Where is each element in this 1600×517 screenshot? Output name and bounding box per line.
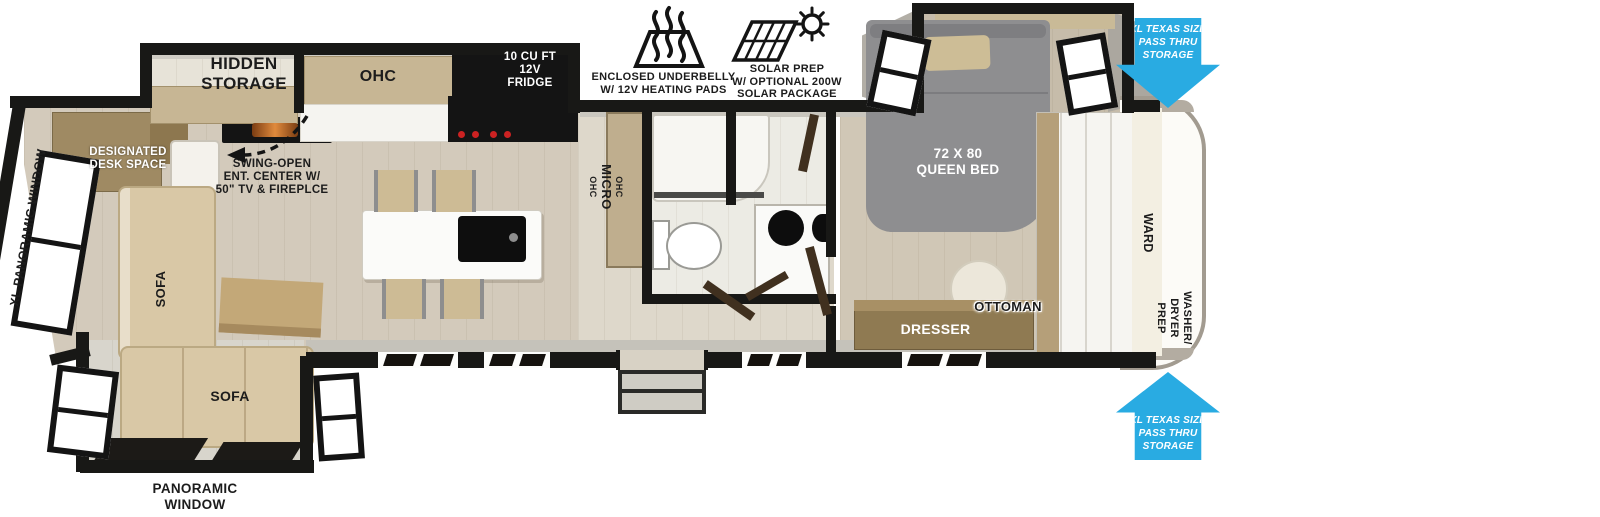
floorplan-canvas: XL TEXAS SIZE PASS THRU STORAGE XL TEXAS… xyxy=(0,0,1600,517)
range-burner-1 xyxy=(458,131,465,138)
designated-desk-label: DESIGNATED DESK SPACE xyxy=(66,146,190,172)
shower-threshold xyxy=(654,192,764,198)
panoramic-window-label: PANORAMIC WINDOW xyxy=(120,481,270,512)
bar-stool xyxy=(432,170,476,212)
bathroom-right-wall xyxy=(826,107,836,257)
range-burner-3 xyxy=(490,131,497,138)
cabinet-micro-label: MICRO xyxy=(599,164,614,210)
wardrobe xyxy=(1036,112,1134,354)
coffee-table xyxy=(219,277,324,337)
fridge-label: 10 CU FT 12V FRIDGE xyxy=(482,51,578,91)
solar-prep-icon xyxy=(730,8,834,66)
ohc-label: OHC xyxy=(328,68,428,86)
range-burner-2 xyxy=(472,131,479,138)
entry-step-divider xyxy=(622,389,702,393)
kitchen-counter xyxy=(300,104,452,142)
cabinet-ohc-top-label: OHC xyxy=(614,176,624,198)
bar-stool xyxy=(440,279,484,319)
hidden-storage-label: HIDDEN STORAGE xyxy=(162,54,326,93)
sofa-slideout-right-wall xyxy=(300,356,313,470)
sofa-slideout-right-window xyxy=(313,373,365,462)
bottom-window xyxy=(378,352,458,368)
cooktop-knob xyxy=(509,233,518,242)
solar-label: SOLAR PREP W/ OPTIONAL 200W SOLAR PACKAG… xyxy=(707,63,867,101)
washer-dryer-label: WASHER/ DRYER PREP xyxy=(1153,286,1193,350)
entry-door-opening xyxy=(616,350,708,370)
pass-thru-label-bottom: XL TEXAS SIZE PASS THRU STORAGE xyxy=(1130,414,1206,453)
ottoman-label: OTTOMAN xyxy=(950,300,1066,315)
pass-thru-label-top: XL TEXAS SIZE PASS THRU STORAGE xyxy=(1130,23,1206,62)
bedroom-slideout-right-wall xyxy=(1122,3,1134,113)
sofa-left-label: SOFA xyxy=(154,239,172,339)
bathroom-inner-wall xyxy=(726,107,736,205)
toilet-bowl xyxy=(666,222,722,270)
sofa-bottom-label: SOFA xyxy=(180,388,280,404)
bedroom-slideout-top-wall xyxy=(912,3,1134,14)
top-wall-cap xyxy=(1128,100,1160,112)
pass-thru-arrow-bottom: XL TEXAS SIZE PASS THRU STORAGE xyxy=(1116,372,1220,460)
bed-pillow xyxy=(923,35,990,71)
bottom-window xyxy=(484,352,550,368)
swing-open-arrow xyxy=(225,108,315,164)
range-burner-4 xyxy=(504,131,511,138)
top-wall-rear xyxy=(10,96,152,108)
sofa-slideout-left-window xyxy=(47,365,119,460)
ward-label: WARD xyxy=(1139,203,1155,263)
cabinet-ohc-bottom-label: OHC xyxy=(588,176,598,198)
bar-stool xyxy=(382,279,426,319)
dresser-label: DRESSER xyxy=(878,321,993,337)
bar-stool xyxy=(374,170,418,212)
sofa-slideout-bottom-wall xyxy=(80,460,314,473)
bottom-window xyxy=(902,352,986,368)
tall-cabinet-label: OHC MICRO OHC xyxy=(618,112,634,262)
bottom-window xyxy=(742,352,806,368)
shower xyxy=(652,114,770,202)
vanity-sink xyxy=(768,210,804,246)
enclosed-underbelly-icon xyxy=(622,4,712,70)
queen-bed-label: 72 X 80 QUEEN BED xyxy=(888,146,1028,177)
bathroom-left-wall xyxy=(642,107,652,303)
